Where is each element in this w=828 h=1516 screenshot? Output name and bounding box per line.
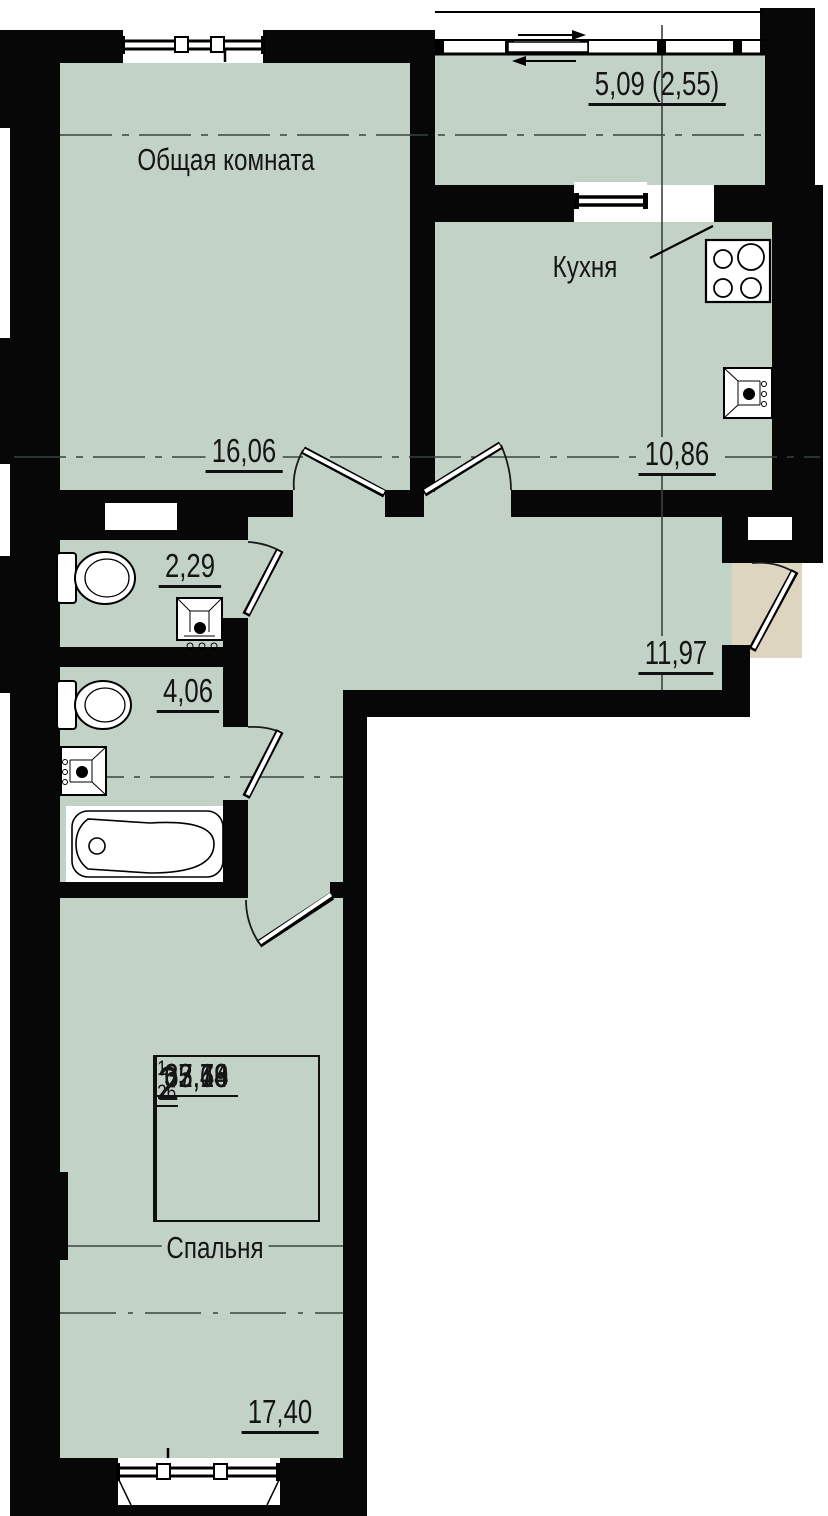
door-opening-floor (245, 882, 330, 898)
wall-kitchen-top (714, 185, 772, 222)
area-value-cell: 67,73 (155, 1057, 238, 1095)
living-area-label: 16,06 (206, 434, 283, 473)
bathtub-area (66, 806, 223, 884)
wall-left (10, 30, 60, 1516)
wall-living-kitchen (410, 30, 435, 492)
wall-bath-right (223, 618, 248, 727)
corridor-floor (248, 692, 343, 882)
wall-bath-bottom (60, 882, 245, 898)
wall-kitchen-top (435, 185, 574, 222)
balcony-glazing-band (435, 8, 765, 55)
balcony-door-opening (647, 185, 714, 222)
bedroom-area-label: 17,40 (242, 1395, 319, 1434)
bedroom-label: Спальня (162, 1230, 269, 1266)
wall-kitchen-right (772, 185, 823, 507)
kitchen-area-label: 10,86 (639, 437, 716, 476)
door-opening-floor (223, 540, 248, 618)
hall-area-label: 11,97 (639, 636, 714, 675)
wc-area-label: 2,29 (159, 549, 222, 588)
door-opening-floor (424, 490, 511, 517)
wall-pilaster (0, 338, 10, 464)
balcony-area-label: 5,09 (2,55) (589, 67, 726, 106)
floor-plan: Общая комната 5,09 (2,55) Кухня 16,06 10… (0, 0, 828, 1516)
wall-entry-stub (722, 645, 750, 692)
kitchen-label: Кухня (553, 249, 618, 285)
wall-top (263, 30, 410, 63)
wall-balcony-right (765, 55, 815, 185)
wall-wc-bath-divider (60, 647, 223, 667)
living-window-bay (123, 0, 263, 63)
wall-living-bottom (385, 490, 424, 517)
entry-landing (732, 560, 802, 658)
vent-niche (105, 503, 177, 530)
entry-niche (748, 517, 792, 540)
wall-pilaster (60, 1172, 68, 1260)
wall-pilaster (0, 556, 10, 693)
wall-bedroom-right (343, 717, 367, 1516)
wall-top (60, 30, 123, 63)
door-opening-floor (223, 727, 248, 800)
door-opening-floor (293, 490, 385, 517)
apartment-info-table: 1–26 2 33,46 62,64 65,19 67,73 (153, 1055, 320, 1222)
wall-pilaster (0, 30, 10, 128)
bedroom-window-bay (118, 1458, 280, 1505)
wall-balcony-corner (760, 8, 815, 55)
wall-kitchen-bottom (511, 490, 823, 517)
kitchen-window-bay (574, 182, 647, 222)
wall-bath-right (223, 490, 248, 540)
bathroom-area-label: 4,06 (157, 674, 220, 713)
wall-hall-bottom (343, 690, 750, 717)
living-room-label: Общая комната (137, 142, 314, 178)
wall-bedroom-stub (330, 882, 343, 898)
living-room-floor (60, 63, 410, 492)
